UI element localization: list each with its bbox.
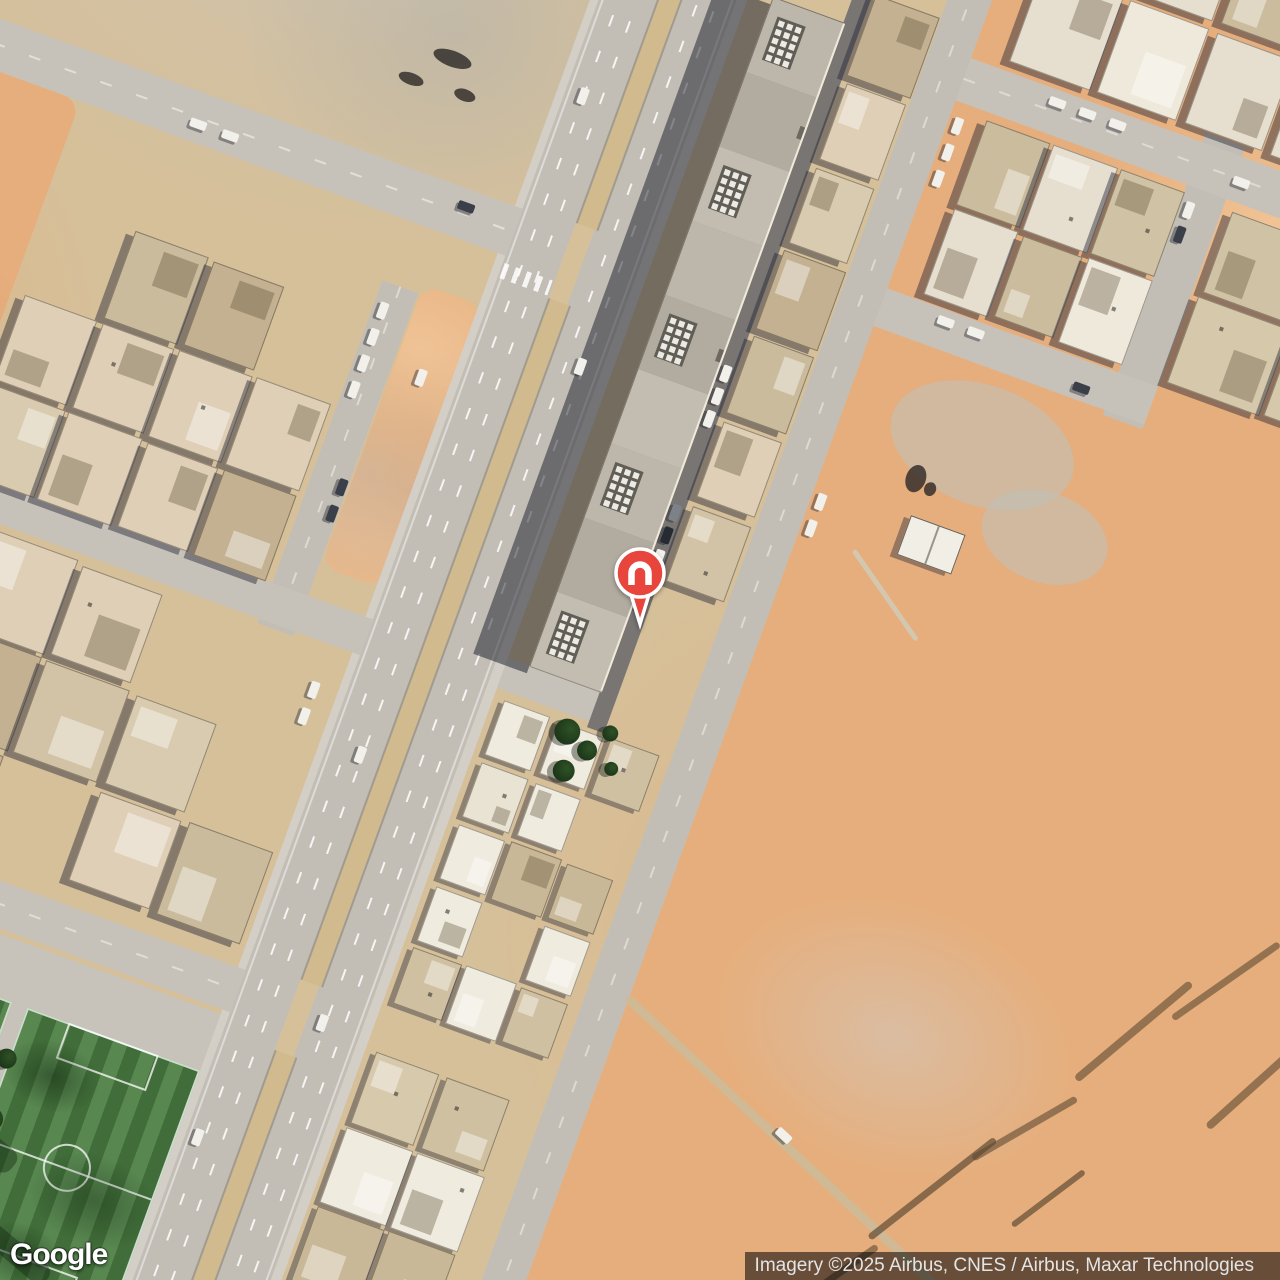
rooftop-court [301, 1244, 346, 1280]
rooftop-court [424, 961, 455, 991]
rooftop-court [1130, 51, 1186, 108]
rooftop-court [114, 813, 171, 867]
rooftop-ac-unit [719, 206, 727, 214]
rooftop-ac-unit [668, 346, 676, 354]
rooftop-ac-unit [566, 654, 574, 662]
rooftop-court [809, 176, 839, 211]
rooftop-ac-pad [762, 16, 806, 69]
rooftop-ac-unit [560, 643, 568, 651]
rooftop-ac-unit [786, 23, 794, 31]
rooftop-ac-unit [729, 180, 737, 188]
rooftop-ac-unit [722, 197, 730, 205]
rooftop-ac-unit [629, 480, 637, 488]
rooftop-court [370, 1060, 403, 1094]
rooftop-court [933, 247, 978, 299]
rooftop-ac-unit [782, 60, 790, 68]
rooftop-court [84, 614, 140, 670]
rooftop-ac-unit [677, 349, 685, 357]
rooftop-ac-unit [617, 486, 625, 494]
rooftop-court [529, 789, 551, 819]
rooftop-ac-unit [612, 474, 620, 482]
rooftop-ac-unit [777, 20, 785, 28]
rooftop-ac-unit [720, 177, 728, 185]
rooftop-ac-unit [552, 640, 560, 648]
rooftop-ac-unit [632, 472, 640, 480]
roof-vent [1068, 217, 1073, 222]
building [517, 783, 582, 853]
rooftop-court [399, 1189, 444, 1236]
google-logo-text: Google [10, 1238, 107, 1271]
roof-vent [703, 571, 708, 576]
rooftop-court [517, 715, 544, 744]
rooftop-ac-unit [674, 357, 682, 365]
rooftop-ac-unit [785, 52, 793, 60]
rooftop-court [454, 1131, 487, 1161]
rooftop-ac-unit [774, 29, 782, 37]
building [547, 863, 613, 934]
rooftop-court [48, 716, 105, 769]
rooftop-court [152, 252, 199, 298]
rooftop-court [896, 16, 930, 50]
rooftop-ac-unit [711, 203, 719, 211]
rooftop-court [518, 994, 540, 1017]
rooftop-ac-unit [734, 192, 742, 200]
rooftop-ac-unit [569, 646, 577, 654]
roof-vent [1111, 307, 1116, 312]
vehicle [297, 707, 311, 726]
roof-vent [502, 793, 507, 798]
building [525, 926, 591, 997]
roof-vent [444, 909, 449, 914]
rooftop-court [453, 993, 484, 1028]
rooftop-court [545, 956, 576, 989]
rooftop-ac-unit [666, 326, 674, 334]
rooftop-ac-unit [737, 183, 745, 191]
attribution-text: Imagery ©2025 Airbus, CNES / Airbus, Max… [755, 1255, 1254, 1276]
building [461, 762, 528, 835]
rooftop-ac-unit [578, 620, 586, 628]
rooftop-ac-unit [777, 49, 785, 57]
rooftop-ac-unit [665, 354, 673, 362]
rooftop-ac-unit [609, 483, 617, 491]
rooftop-court [230, 281, 275, 321]
rooftop-court [1003, 289, 1030, 319]
rooftop-ac-unit [723, 169, 731, 177]
rooftop-court [688, 514, 715, 543]
rooftop-court [353, 1172, 394, 1215]
rooftop-ac-unit [615, 466, 623, 474]
rooftop-ac-unit [660, 343, 668, 351]
rooftop-ac-unit [563, 634, 571, 642]
map-canvas[interactable]: Google Imagery ©2025 Airbus, CNES / Airb… [0, 0, 1280, 1280]
rooftop-court [1232, 0, 1268, 28]
rooftop-court [1233, 98, 1269, 138]
rooftop-court [521, 855, 555, 888]
roof-vent [459, 1188, 464, 1193]
rooftop-court [713, 430, 753, 476]
rooftop-ac-unit [680, 340, 688, 348]
rooftop-ac-pad [654, 313, 698, 366]
building [420, 1077, 510, 1172]
roof-vent [1145, 228, 1150, 233]
roof-vent [621, 767, 626, 772]
rooftop-ac-unit [732, 172, 740, 180]
rooftop-ac-unit [714, 194, 722, 202]
rooftop-ac-unit [731, 200, 739, 208]
rooftop-court [1068, 0, 1112, 40]
rooftop-court [773, 356, 806, 396]
rooftop-ac-unit [783, 32, 791, 40]
rooftop-ac-unit [557, 651, 565, 659]
rooftop-ac-unit [791, 35, 799, 43]
rooftop-ac-unit [606, 491, 614, 499]
rooftop-court [554, 897, 582, 923]
roof-vent [427, 992, 432, 997]
rooftop-ac-unit [603, 500, 611, 508]
rooftop-court [287, 403, 321, 442]
rooftop-ac-unit [663, 334, 671, 342]
rooftop-ac-unit [657, 351, 665, 359]
building [485, 700, 551, 771]
rooftop-ac-unit [567, 626, 575, 634]
rooftop-ac-unit [672, 337, 680, 345]
roof-vent [1219, 326, 1224, 331]
rooftop-ac-unit [623, 497, 631, 505]
rooftop-ac-unit [621, 477, 629, 485]
rooftop-ac-pad [546, 610, 590, 663]
rooftop-ac-unit [572, 637, 580, 645]
rooftop-ac-pad [708, 165, 752, 218]
rooftop-ac-unit [728, 209, 736, 217]
rooftop-court [775, 259, 811, 302]
rooftop-court [117, 343, 164, 386]
rooftop-ac-unit [771, 37, 779, 45]
rooftop-court [491, 806, 511, 826]
rooftop-court [1219, 350, 1267, 403]
rooftop-ac-unit [788, 43, 796, 51]
rooftop-ac-unit [780, 40, 788, 48]
rooftop-ac-unit [624, 469, 632, 477]
rooftop-court [1048, 154, 1090, 190]
rooftop-ac-unit [686, 323, 694, 331]
rooftop-ac-pad [600, 462, 644, 515]
rooftop-ac-unit [561, 614, 569, 622]
place-marker[interactable] [612, 546, 668, 630]
rooftop-court [5, 349, 50, 387]
rooftop-ac-unit [726, 189, 734, 197]
rooftop-ac-unit [570, 617, 578, 625]
rooftop-ac-unit [614, 494, 622, 502]
rooftop-court [1214, 250, 1256, 298]
rooftop-court [130, 706, 177, 749]
rooftop-ac-unit [794, 26, 802, 34]
vehicle [307, 680, 321, 699]
building [591, 738, 660, 813]
marker-circle [616, 549, 664, 597]
rooftop-ac-unit [765, 54, 773, 62]
rooftop-ac-unit [678, 320, 686, 328]
roof-vent [111, 362, 116, 367]
rooftop-ac-unit [558, 623, 566, 631]
rooftop-ac-unit [575, 629, 583, 637]
rooftop-ac-unit [669, 317, 677, 325]
rooftop-court [0, 540, 26, 590]
rooftop-court [48, 455, 92, 506]
rooftop-court [838, 91, 869, 130]
rooftop-ac-unit [717, 186, 725, 194]
rooftop-ac-unit [549, 648, 557, 656]
rooftop-ac-unit [620, 506, 628, 514]
rooftop-court [1115, 179, 1154, 216]
attribution-bar: Imagery ©2025 Airbus, CNES / Airbus, Max… [745, 1252, 1280, 1280]
rooftop-ac-unit [683, 332, 691, 340]
google-logo[interactable]: Google [10, 1238, 107, 1272]
rooftop-court [185, 402, 230, 451]
rooftop-court [168, 465, 208, 511]
rooftop-court [168, 867, 217, 922]
rooftop-court [17, 408, 55, 449]
building [417, 887, 482, 957]
rooftop-court [994, 169, 1031, 217]
roof-vent [454, 1106, 459, 1111]
rooftop-ac-unit [555, 631, 563, 639]
rooftop-court [224, 531, 270, 570]
rooftop-ac-unit [740, 175, 748, 183]
rooftop-ac-unit [626, 489, 634, 497]
rooftop-ac-unit [773, 57, 781, 65]
roof-vent [394, 1091, 399, 1096]
rooftop-court [466, 857, 491, 888]
roof-vent [87, 602, 92, 607]
rooftop-court [438, 921, 467, 949]
rooftop-ac-unit [611, 503, 619, 511]
satellite-imagery [0, 0, 1280, 1280]
rooftop-ac-unit [768, 46, 776, 54]
rooftop-ac-unit [675, 329, 683, 337]
